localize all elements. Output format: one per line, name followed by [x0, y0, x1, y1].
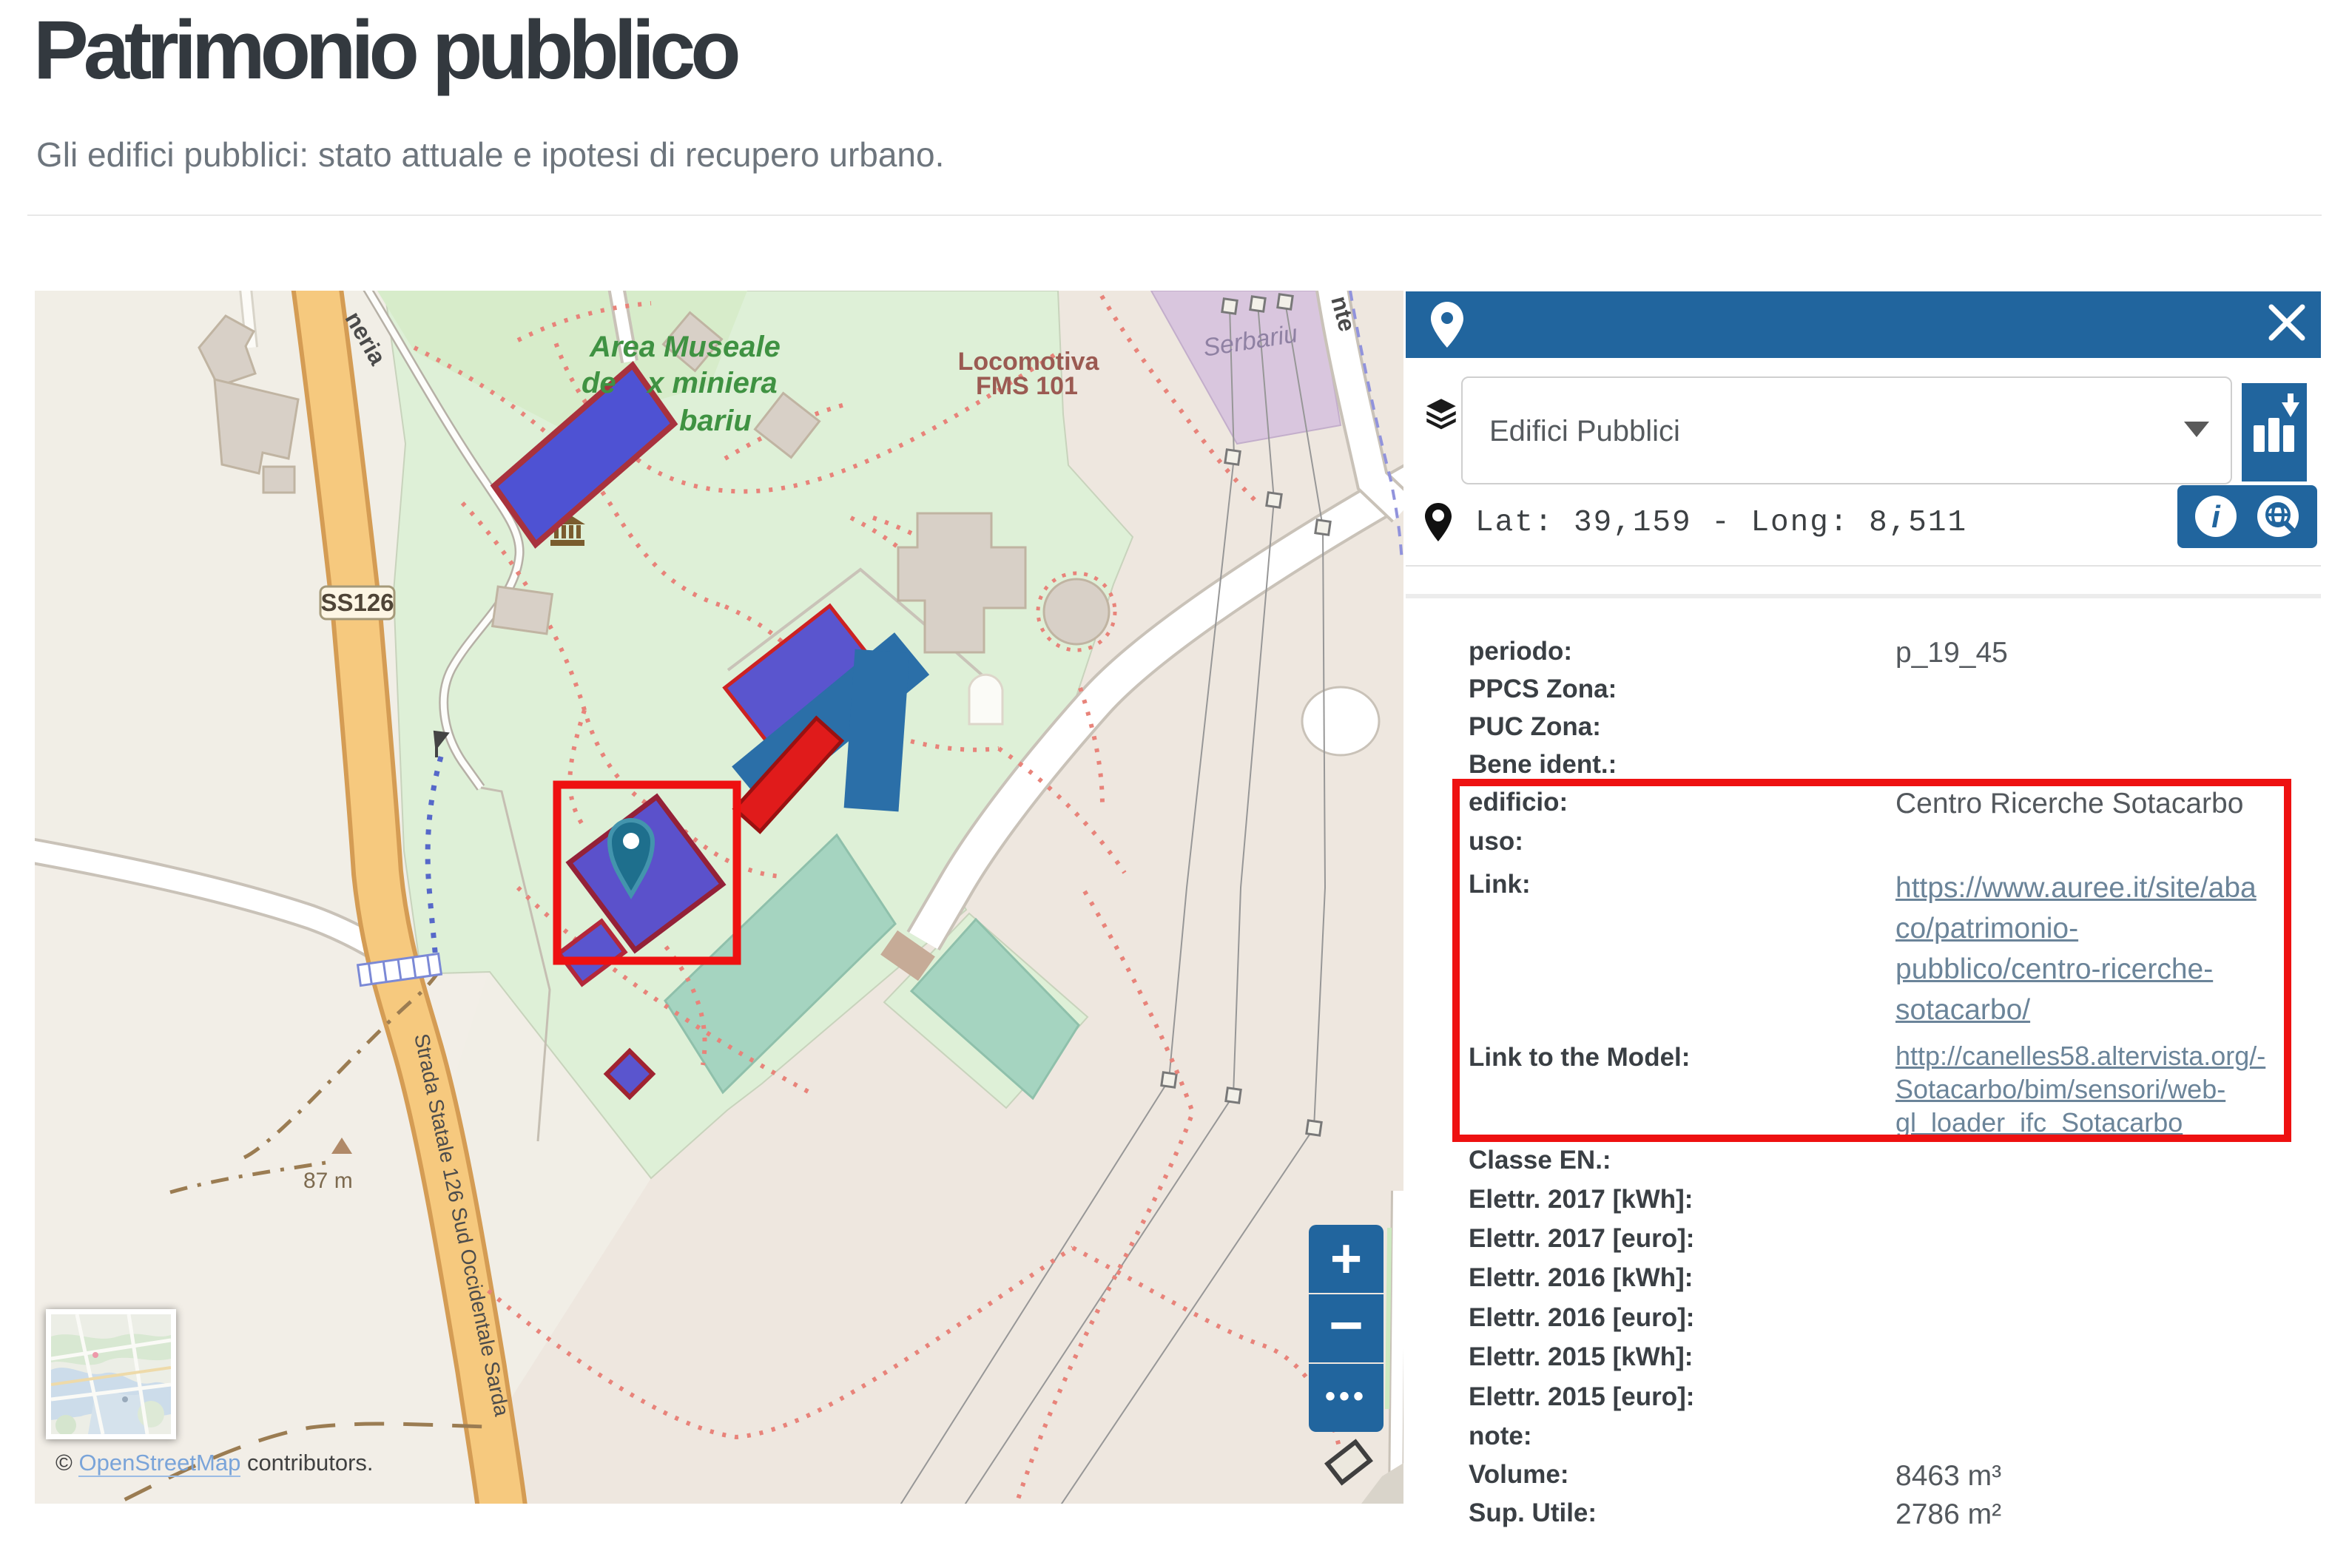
svg-text:de: de	[582, 367, 616, 399]
svg-text:i: i	[2211, 499, 2221, 534]
svg-text:SS126: SS126	[320, 589, 394, 616]
svg-text:FMS 101: FMS 101	[976, 372, 1078, 400]
svg-text:Area Museale: Area Museale	[589, 331, 781, 363]
svg-text:bariu: bariu	[679, 405, 752, 437]
svg-text:87 m: 87 m	[303, 1169, 353, 1193]
svg-text:x miniera: x miniera	[646, 367, 778, 399]
